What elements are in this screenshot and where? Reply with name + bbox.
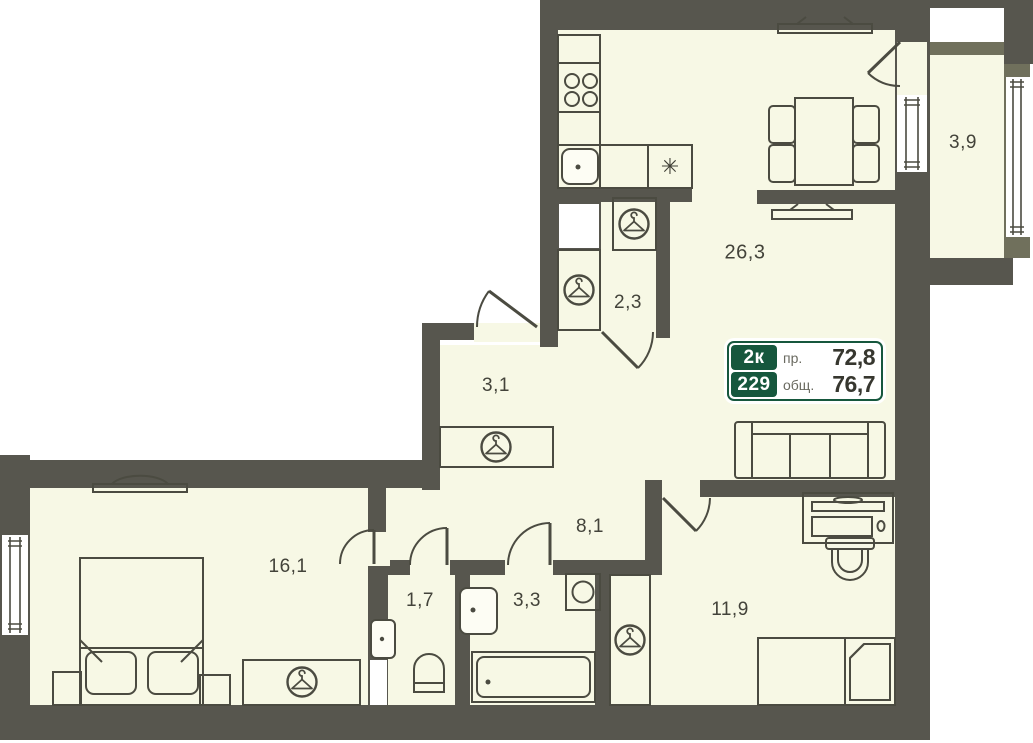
bath-sink-icon (460, 588, 497, 634)
balcony-window (1006, 77, 1030, 237)
bedroom-window (2, 535, 28, 635)
kitchen-sink-icon (562, 149, 598, 184)
design-area-label: пр. (783, 350, 802, 366)
room-area-label-bedroom: 16,1 (269, 556, 308, 578)
room-area-label-entry-hall: 3,1 (482, 375, 510, 397)
kitchen-balcony-window (897, 95, 927, 172)
apartment-info-box: 2к пр. 72,8 229 общ. 76,7 (727, 341, 883, 401)
apartment-type-badge: 2к (731, 345, 777, 370)
wc-niche (370, 660, 387, 705)
room-area-label-bedroom-2: 11,9 (711, 599, 749, 621)
room-area-label-corridor: 8,1 (576, 516, 604, 538)
info-row-design-area: 2к пр. 72,8 (730, 344, 880, 371)
room-area-label-wardrobe: 2,3 (614, 292, 642, 314)
room-area-label-wc: 1,7 (406, 590, 434, 612)
dining-table (795, 98, 853, 185)
design-area-value: 72,8 (802, 344, 880, 371)
total-area-value: 76,7 (814, 371, 880, 398)
fridge-icon: ✳ (661, 156, 679, 178)
entrance-door (477, 291, 537, 327)
floor-plan: 3,9 26,3 2,3 3,1 8,1 16,1 1,7 3,3 11,9 ✳… (0, 0, 1033, 743)
room-area-label-balcony: 3,9 (949, 132, 977, 154)
info-row-total-area: 229 общ. 76,7 (730, 371, 880, 398)
total-area-label: общ. (783, 377, 814, 393)
room-area-label-kitchen-living: 26,3 (725, 242, 766, 265)
apartment-number-badge: 229 (731, 372, 777, 397)
wc-sink-icon (371, 620, 395, 658)
vent-shaft (558, 203, 600, 249)
room-area-label-bathroom: 3,3 (513, 590, 541, 612)
